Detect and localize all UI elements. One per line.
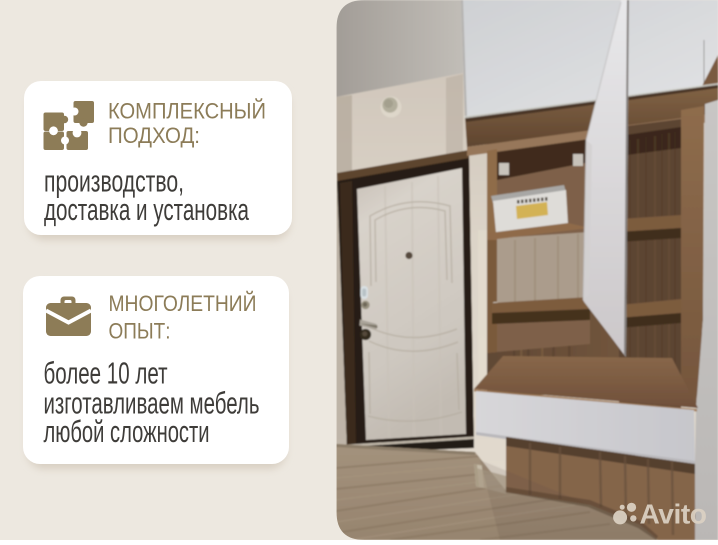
svg-text:Avito: Avito — [640, 498, 707, 530]
svg-text:любой сложности: любой сложности — [44, 414, 210, 449]
svg-text:МНОГОЛЕТНИЙ: МНОГОЛЕТНИЙ — [109, 291, 257, 316]
svg-text:ПОДХОД:: ПОДХОД: — [108, 123, 200, 148]
svg-text:доставка и установка: доставка и установка — [44, 192, 249, 227]
svg-text:КОМПЛЕКСНЫЙ: КОМПЛЕКСНЫЙ — [108, 99, 266, 124]
svg-text:ОПЫТ:: ОПЫТ: — [109, 318, 171, 343]
